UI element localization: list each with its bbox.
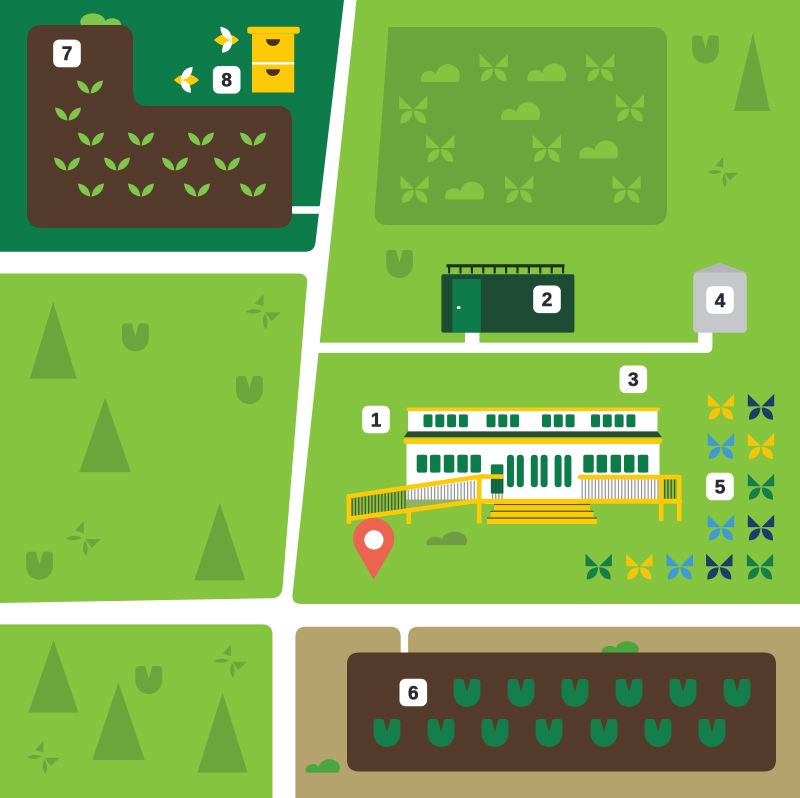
svg-text:4: 4 <box>715 291 726 312</box>
svg-text:3: 3 <box>628 370 639 391</box>
svg-text:7: 7 <box>62 44 73 65</box>
svg-text:8: 8 <box>221 71 232 92</box>
svg-text:5: 5 <box>715 477 726 498</box>
svg-text:6: 6 <box>408 683 419 704</box>
svg-text:2: 2 <box>542 290 553 311</box>
svg-text:1: 1 <box>371 410 382 431</box>
